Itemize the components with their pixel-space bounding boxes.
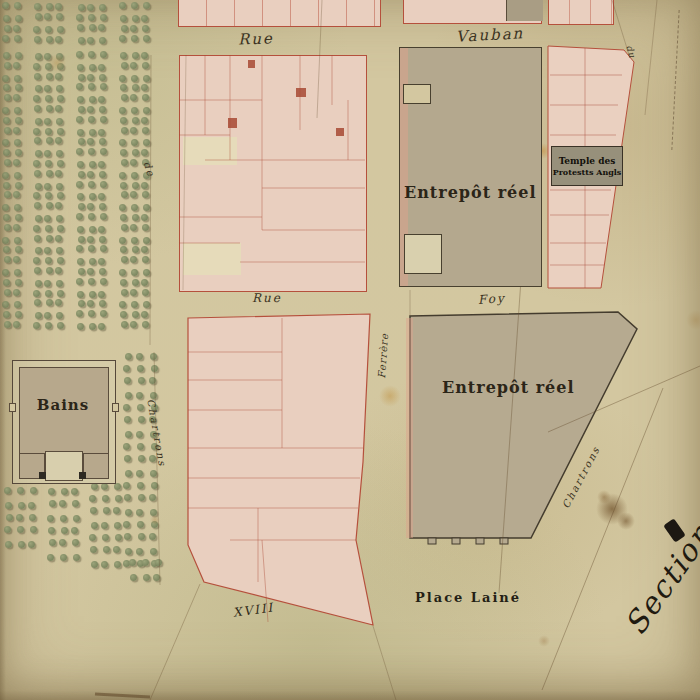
parcel-light bbox=[183, 137, 237, 165]
building-label-bains: Bains bbox=[24, 396, 102, 414]
door-mark bbox=[39, 472, 46, 479]
entrepot-2-building bbox=[410, 312, 637, 538]
parcel-outlines-layer bbox=[0, 0, 700, 700]
building-label-entrepot-2: Entrepôt réel bbox=[442, 378, 572, 397]
door-mark bbox=[79, 472, 86, 479]
street-label-rue-top: Rue bbox=[238, 29, 274, 48]
courtyard bbox=[404, 234, 442, 274]
entrepot-2-teeth bbox=[428, 538, 508, 544]
parcel-block-south bbox=[188, 314, 373, 625]
faint-line bbox=[150, 584, 200, 700]
historical-cadastral-map: 5860687963666158576447545251485345497976… bbox=[0, 0, 700, 700]
street-label-rue-mid: Rue bbox=[252, 291, 282, 305]
bains-wing-right bbox=[83, 453, 109, 479]
temple-label-line1: Temple des bbox=[552, 156, 622, 167]
faint-line bbox=[317, 0, 322, 118]
faint-line bbox=[154, 352, 160, 585]
place-label-place-laine: Place Lainé bbox=[415, 590, 521, 605]
faint-line bbox=[150, 55, 151, 345]
faint-line bbox=[373, 626, 396, 700]
red-edge-strip bbox=[406, 318, 413, 538]
building-label-entrepot-1: Entrepôt réel bbox=[404, 183, 536, 202]
street-label-vauban: Vauban bbox=[456, 24, 525, 46]
wall-tick bbox=[112, 403, 119, 412]
bains-courtyard bbox=[45, 451, 83, 481]
courtyard-notch bbox=[403, 84, 431, 104]
faint-line bbox=[645, 0, 657, 115]
temple-label-line2: Protestts Angls bbox=[552, 167, 622, 177]
parcel-light bbox=[183, 243, 241, 275]
entrepot-1-building bbox=[399, 47, 542, 287]
wall-tick bbox=[9, 403, 16, 412]
faint-line bbox=[95, 694, 150, 697]
bains-building bbox=[12, 360, 116, 484]
temple-building: Temple des Protestts Angls bbox=[551, 146, 623, 186]
street-label-foy: Foy bbox=[478, 291, 507, 307]
